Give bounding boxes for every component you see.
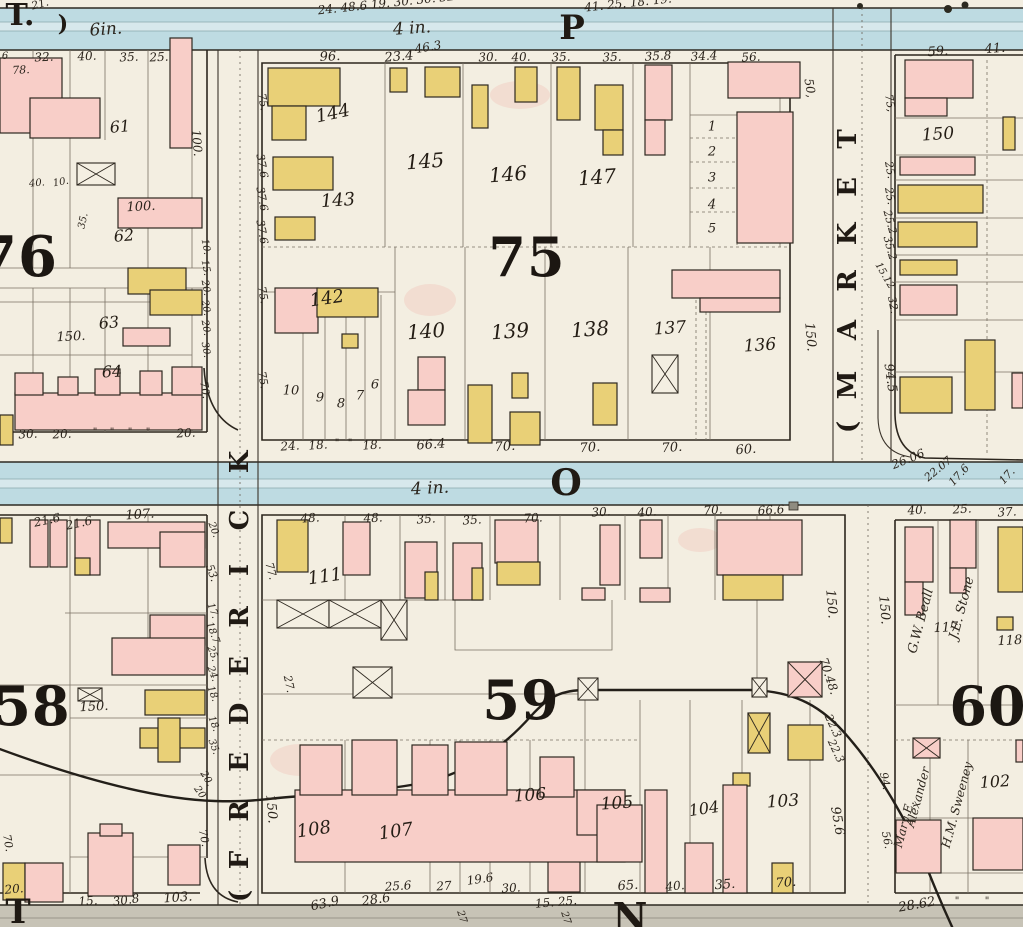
- building: [150, 290, 202, 315]
- dimension-label: 35.: [416, 512, 436, 525]
- map-line: [455, 600, 612, 650]
- dimension-label: 20.: [199, 299, 212, 316]
- dimension-label: ": [955, 897, 960, 907]
- dimension-label: 65.: [617, 879, 639, 893]
- lot-number: 63: [98, 314, 120, 332]
- dimension-label: 75.: [256, 92, 270, 111]
- dimension-label: 30.: [501, 881, 521, 894]
- dimension-label: 59.: [927, 45, 949, 59]
- dimension-label: 34.4: [690, 49, 717, 62]
- dimension-label: 20.: [199, 279, 212, 296]
- building: [140, 371, 162, 395]
- street-letter: T.: [6, 1, 35, 31]
- building: [789, 502, 798, 510]
- building: [497, 562, 540, 585]
- dimension-label: 70.: [579, 441, 601, 455]
- dimension-label: 56.: [880, 830, 894, 849]
- dimension-label: 15.: [199, 259, 212, 276]
- dimension-label: ": [985, 897, 990, 907]
- stain: [404, 284, 456, 316]
- lot-number: 139: [490, 320, 529, 343]
- lot-number: 102: [979, 773, 1011, 791]
- dimension-label: 40.: [77, 50, 97, 63]
- dimension-label: 35.: [602, 51, 622, 64]
- block-number: 59: [482, 673, 559, 727]
- dimension-label: 50,: [802, 78, 817, 99]
- dimension-label: ": [348, 439, 353, 449]
- dimension-label: 150.: [823, 589, 838, 619]
- lot-number: 147: [577, 166, 616, 189]
- building: [512, 373, 528, 398]
- building: [15, 373, 43, 395]
- building: [472, 85, 488, 128]
- street-letter: E: [227, 752, 253, 772]
- dimension-label: 35.: [119, 51, 139, 64]
- dimension-label: 25.: [952, 502, 972, 515]
- dimension-label: ": [110, 428, 115, 438]
- dimension-label: 20.: [176, 427, 196, 440]
- dimension-label: 78.: [12, 64, 30, 76]
- building: [640, 520, 662, 558]
- dimension-label: ": [146, 428, 151, 438]
- street-letter: ): [58, 13, 68, 35]
- building: [733, 773, 750, 786]
- building: [700, 298, 780, 312]
- dimension-label: 70.: [494, 440, 516, 454]
- dimension-label: 100.: [126, 200, 156, 214]
- building: [723, 575, 783, 600]
- stain: [678, 528, 722, 552]
- building: [900, 377, 952, 413]
- street-band: [0, 22, 1023, 31]
- building: [950, 520, 976, 568]
- building: [408, 390, 445, 425]
- building: [58, 377, 78, 395]
- building: [600, 525, 620, 585]
- building: [582, 588, 605, 600]
- dimension-label: 41.: [984, 42, 1006, 56]
- building: [737, 112, 793, 243]
- dimension-label: 103.: [163, 891, 193, 906]
- building: [75, 558, 90, 575]
- dimension-label: ": [128, 428, 133, 438]
- dimension-label: 1: [708, 121, 716, 134]
- building: [352, 740, 397, 795]
- dimension-label: 7: [356, 390, 364, 403]
- street-band: [0, 905, 1023, 927]
- lot-number: 108: [296, 819, 333, 842]
- water-main-size-label: 6in.: [89, 20, 123, 39]
- building: [300, 745, 342, 795]
- building: [900, 260, 957, 275]
- building: [645, 790, 667, 893]
- dimension-label: 66.6: [757, 503, 784, 517]
- lot-number: 143: [320, 191, 356, 211]
- dimension-label: 30.8: [112, 892, 140, 908]
- building: [788, 725, 823, 760]
- street-letter: (: [835, 421, 861, 433]
- dimension-label: 70.: [197, 828, 211, 847]
- dimension-label: 25.: [149, 51, 169, 64]
- building: [593, 383, 617, 425]
- block-number: 76: [0, 229, 58, 285]
- dimension-label: 100.: [190, 129, 204, 157]
- lot-number: 105: [600, 794, 634, 813]
- dimension-label: 150.: [56, 330, 86, 344]
- building: [160, 532, 205, 567]
- street-letter: P: [559, 11, 585, 45]
- street-letter: R: [227, 606, 253, 628]
- building: [685, 843, 713, 893]
- water-main-size-label: 4 in.: [411, 480, 450, 499]
- building: [112, 638, 205, 675]
- street-letter: E: [835, 177, 861, 197]
- dimension-label: 40.: [637, 505, 657, 518]
- water-main-size-label: 4 in.: [392, 19, 431, 39]
- street-letter: I: [227, 564, 253, 576]
- dimension-label: 70.: [661, 441, 683, 455]
- dimension-label: 10: [283, 385, 300, 398]
- tree-symbol: [962, 2, 969, 9]
- street-letter: C: [227, 510, 253, 531]
- building: [412, 745, 448, 795]
- dimension-label: 19.6: [466, 871, 494, 887]
- dimension-label: 8: [337, 398, 345, 411]
- street-letter: K: [227, 451, 253, 474]
- building: [273, 157, 333, 190]
- lot-number: 140: [406, 320, 445, 343]
- building: [898, 222, 977, 247]
- dimension-label: 118: [997, 634, 1022, 648]
- street-letter: N: [613, 898, 648, 927]
- dimension-label: 75.: [256, 285, 270, 304]
- dimension-label: 25.: [883, 160, 897, 179]
- dimension-label: 48.: [300, 511, 320, 524]
- building: [728, 62, 800, 98]
- street-letter: O: [550, 465, 581, 501]
- dimension-label: 56.: [741, 51, 761, 64]
- building: [905, 98, 947, 116]
- building: [168, 845, 200, 885]
- lot-number: 62: [113, 227, 135, 245]
- building: [418, 357, 445, 390]
- map-base-layer: [0, 0, 1023, 927]
- street-letter: R: [227, 800, 253, 822]
- dimension-label: 48.: [363, 511, 383, 524]
- dimension-label: 30.: [478, 51, 498, 64]
- building: [30, 98, 100, 138]
- building: [997, 617, 1013, 630]
- building: [390, 68, 407, 92]
- building: [998, 527, 1023, 592]
- building: [88, 833, 133, 896]
- block-number: 58: [0, 679, 71, 733]
- dimension-label: 150.: [263, 794, 278, 824]
- dimension-label: 27.: [282, 674, 296, 693]
- building: [717, 520, 802, 575]
- lot-number: 104: [688, 799, 720, 819]
- dimension-label: 37.: [997, 505, 1017, 518]
- building: [15, 393, 202, 430]
- dimension-label: 35.: [714, 878, 736, 892]
- dimension-label: 107.: [125, 508, 155, 523]
- dimension-label: 32.: [34, 51, 54, 64]
- lot-number: 150: [921, 125, 955, 144]
- dimension-label: 96.: [319, 50, 340, 64]
- dimension-label: 18.: [308, 438, 328, 451]
- street-letter: F: [227, 851, 253, 869]
- building: [1012, 373, 1023, 408]
- dimension-label: 23.4: [384, 49, 414, 64]
- map-canvas: 21.24. 48.6 19. 30. 30. 32.41. 25. 18. 1…: [0, 0, 1023, 927]
- street-letter: E: [227, 656, 253, 676]
- lot-number: 61: [109, 118, 131, 136]
- dimension-label: 18.: [362, 438, 382, 451]
- lot-number: 106: [513, 786, 547, 805]
- dimension-label: 70.: [703, 503, 723, 516]
- lot-number: 107: [378, 821, 415, 844]
- dimension-label: 75.: [256, 370, 270, 389]
- street-letter: M: [835, 371, 861, 400]
- dimension-label: 150.: [876, 595, 891, 625]
- dimension-label: 3: [708, 172, 716, 185]
- building: [145, 690, 205, 715]
- building: [905, 60, 973, 98]
- building: [172, 367, 202, 395]
- building: [295, 790, 625, 862]
- building: [900, 157, 975, 175]
- street-letter: T: [5, 895, 30, 927]
- dimension-label: 75,: [883, 93, 897, 112]
- lot-number: 138: [570, 318, 609, 341]
- building: [965, 340, 995, 410]
- street-letter: T: [835, 129, 861, 148]
- dimension-label: 6: [2, 52, 8, 62]
- building: [425, 67, 460, 97]
- dimension-label: 70.: [523, 511, 543, 524]
- building: [1003, 117, 1015, 150]
- dimension-label: 2: [708, 146, 716, 159]
- dimension-label: 9: [316, 392, 324, 405]
- building: [272, 106, 306, 140]
- lot-number: 142: [309, 288, 346, 311]
- building: [900, 285, 957, 315]
- street-band: [0, 479, 1023, 488]
- dimension-label: 70.: [198, 380, 212, 399]
- map-line: [204, 368, 238, 430]
- building: [595, 85, 623, 130]
- dimension-label: 150.: [802, 322, 817, 352]
- dimension-label: 40.: [665, 879, 685, 893]
- dimension-label: 15.: [78, 894, 98, 907]
- street-letter: R: [835, 270, 861, 292]
- dimension-label: 6: [371, 379, 379, 392]
- building: [973, 818, 1023, 870]
- dimension-label: 70.: [1, 833, 15, 852]
- dimension-label: 28.6: [361, 892, 391, 909]
- lot-number: 145: [405, 150, 444, 173]
- building: [100, 824, 122, 836]
- building: [50, 520, 67, 567]
- building: [898, 185, 983, 213]
- street-letter: K: [835, 223, 861, 246]
- street-letter: D: [227, 703, 253, 726]
- street-letter: (: [227, 890, 253, 902]
- dimension-label: 20.: [52, 428, 72, 441]
- building: [472, 568, 483, 600]
- dimension-label: 20.: [199, 319, 212, 336]
- building: [25, 863, 63, 902]
- building: [343, 522, 370, 575]
- dimension-label: ": [93, 428, 98, 438]
- dimension-label: 35.: [462, 513, 482, 526]
- building: [468, 385, 492, 443]
- building: [905, 527, 933, 582]
- street-letter: A: [835, 320, 861, 340]
- dimension-label: 30.: [591, 505, 611, 518]
- dimension-label: 30.: [199, 341, 212, 358]
- lot-number: 103: [766, 792, 800, 811]
- dimension-label: 40.: [907, 503, 927, 516]
- dimension-label: 25.: [883, 186, 897, 205]
- dimension-label: 60.: [735, 443, 757, 457]
- lot-number: 64: [101, 363, 122, 380]
- block-number: 60: [949, 679, 1023, 733]
- tree-symbol: [857, 3, 863, 9]
- building: [0, 415, 13, 445]
- dimension-label: 10.: [199, 238, 212, 255]
- building: [268, 68, 340, 106]
- building: [275, 217, 315, 240]
- building: [495, 520, 538, 563]
- building: [123, 328, 170, 346]
- dimension-label: 27: [436, 879, 452, 892]
- dimension-label: 32.: [886, 295, 900, 314]
- dimension-label: 150.: [79, 700, 109, 714]
- building: [645, 65, 672, 120]
- dimension-label: 70.: [775, 876, 797, 890]
- dimension-label: 5: [708, 223, 716, 236]
- building: [557, 67, 580, 120]
- dimension-label: 30.: [18, 428, 38, 441]
- lot-number: 137: [653, 319, 687, 338]
- dimension-label: 35.8: [644, 49, 671, 62]
- dimension-label: 15. 25.: [535, 894, 578, 910]
- building: [425, 572, 438, 600]
- block-number: 75: [488, 230, 565, 284]
- building: [342, 334, 358, 348]
- lot-number: 146: [488, 163, 527, 186]
- lot-number: 136: [743, 336, 777, 355]
- building: [672, 270, 780, 298]
- building: [645, 120, 665, 155]
- building: [603, 130, 623, 155]
- lot-number: 111: [307, 566, 344, 589]
- dimension-label: 94.5: [882, 363, 899, 393]
- building: [158, 718, 180, 762]
- building: [455, 742, 507, 795]
- dimension-label: 66.4: [416, 438, 446, 453]
- dimension-label: 40.: [511, 51, 531, 64]
- tree-symbol: [944, 5, 952, 13]
- dimension-label: 35.: [551, 51, 571, 64]
- street-bands: [0, 8, 1023, 927]
- dimension-label: ": [335, 439, 340, 449]
- dimension-label: 117: [933, 621, 958, 635]
- building: [515, 67, 537, 102]
- dimension-label: 40.: [29, 178, 46, 189]
- building: [1016, 740, 1023, 762]
- dimension-label: 94.: [878, 771, 892, 790]
- building: [0, 518, 12, 543]
- dimension-label: 4: [708, 199, 716, 212]
- building: [277, 520, 308, 572]
- building: [640, 588, 670, 602]
- dimension-label: 24.: [280, 439, 300, 452]
